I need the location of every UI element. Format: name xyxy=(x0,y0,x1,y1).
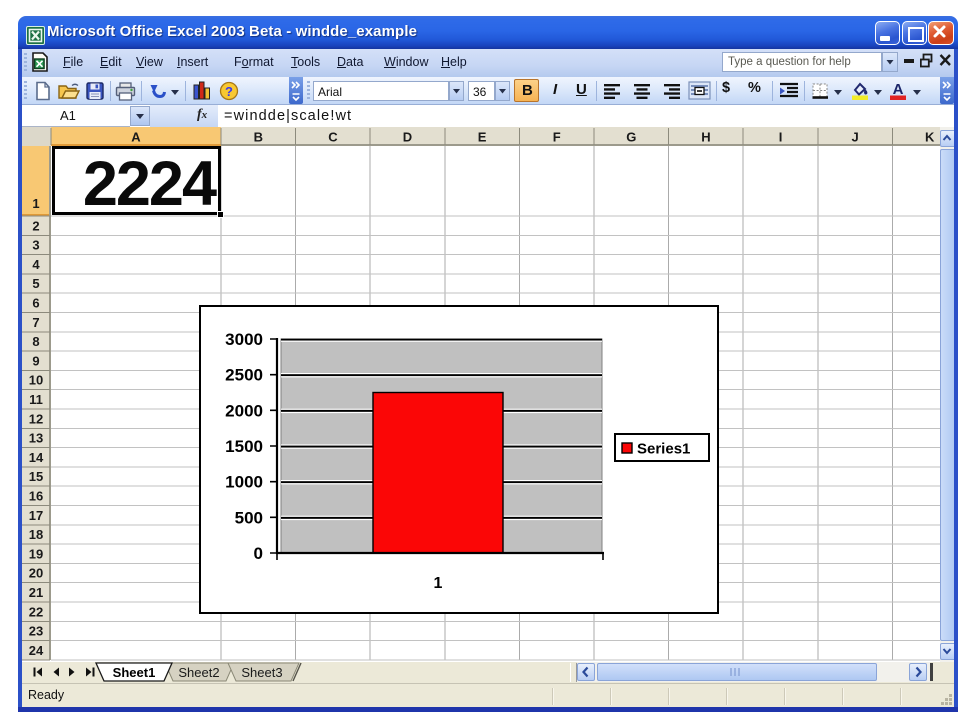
svg-text:K: K xyxy=(925,130,935,145)
svg-text:24: 24 xyxy=(29,643,44,658)
svg-text:14: 14 xyxy=(29,450,44,465)
svg-text:E: E xyxy=(478,130,487,145)
svg-text:A: A xyxy=(893,81,904,98)
svg-text:H: H xyxy=(701,130,710,145)
svg-text:18: 18 xyxy=(29,527,43,542)
svg-text:3: 3 xyxy=(32,238,39,253)
svg-text:1000: 1000 xyxy=(225,473,263,492)
svg-text:8: 8 xyxy=(32,334,39,349)
svg-text:9: 9 xyxy=(32,353,39,368)
svg-text:C: C xyxy=(328,130,338,145)
svg-text:?: ? xyxy=(225,84,233,99)
svg-text:4: 4 xyxy=(32,257,40,272)
svg-text:2000: 2000 xyxy=(225,401,263,420)
svg-text:D: D xyxy=(403,130,412,145)
svg-text:20: 20 xyxy=(29,566,43,581)
svg-text:7: 7 xyxy=(32,315,39,330)
svg-text:A: A xyxy=(131,130,141,145)
svg-text:12: 12 xyxy=(29,411,43,426)
svg-text:B: B xyxy=(254,130,263,145)
svg-text:J: J xyxy=(851,130,858,145)
svg-text:Series1: Series1 xyxy=(637,441,690,458)
svg-text:2: 2 xyxy=(32,218,39,233)
svg-text:I: I xyxy=(779,130,783,145)
svg-text:1500: 1500 xyxy=(225,437,263,456)
svg-text:17: 17 xyxy=(29,508,43,523)
svg-text:Sheet1: Sheet1 xyxy=(113,665,156,680)
svg-text:G: G xyxy=(626,130,636,145)
svg-text:1: 1 xyxy=(434,575,443,592)
svg-text:6: 6 xyxy=(32,296,39,311)
svg-text:13: 13 xyxy=(29,431,43,446)
svg-text:5: 5 xyxy=(32,276,39,291)
svg-text:Sheet3: Sheet3 xyxy=(241,665,282,680)
svg-text:1: 1 xyxy=(32,196,39,211)
svg-text:22: 22 xyxy=(29,604,43,619)
svg-text:2500: 2500 xyxy=(225,366,263,385)
svg-text:19: 19 xyxy=(29,546,43,561)
svg-text:500: 500 xyxy=(235,508,263,527)
svg-text:Sheet2: Sheet2 xyxy=(178,665,219,680)
svg-text:3000: 3000 xyxy=(225,330,263,349)
svg-text:15: 15 xyxy=(29,469,43,484)
svg-text:11: 11 xyxy=(29,392,43,407)
svg-text:10: 10 xyxy=(29,373,43,388)
svg-text:23: 23 xyxy=(29,624,43,639)
svg-text:21: 21 xyxy=(29,585,43,600)
svg-text:F: F xyxy=(553,130,561,145)
svg-text:16: 16 xyxy=(29,489,43,504)
svg-text:0: 0 xyxy=(254,544,263,563)
